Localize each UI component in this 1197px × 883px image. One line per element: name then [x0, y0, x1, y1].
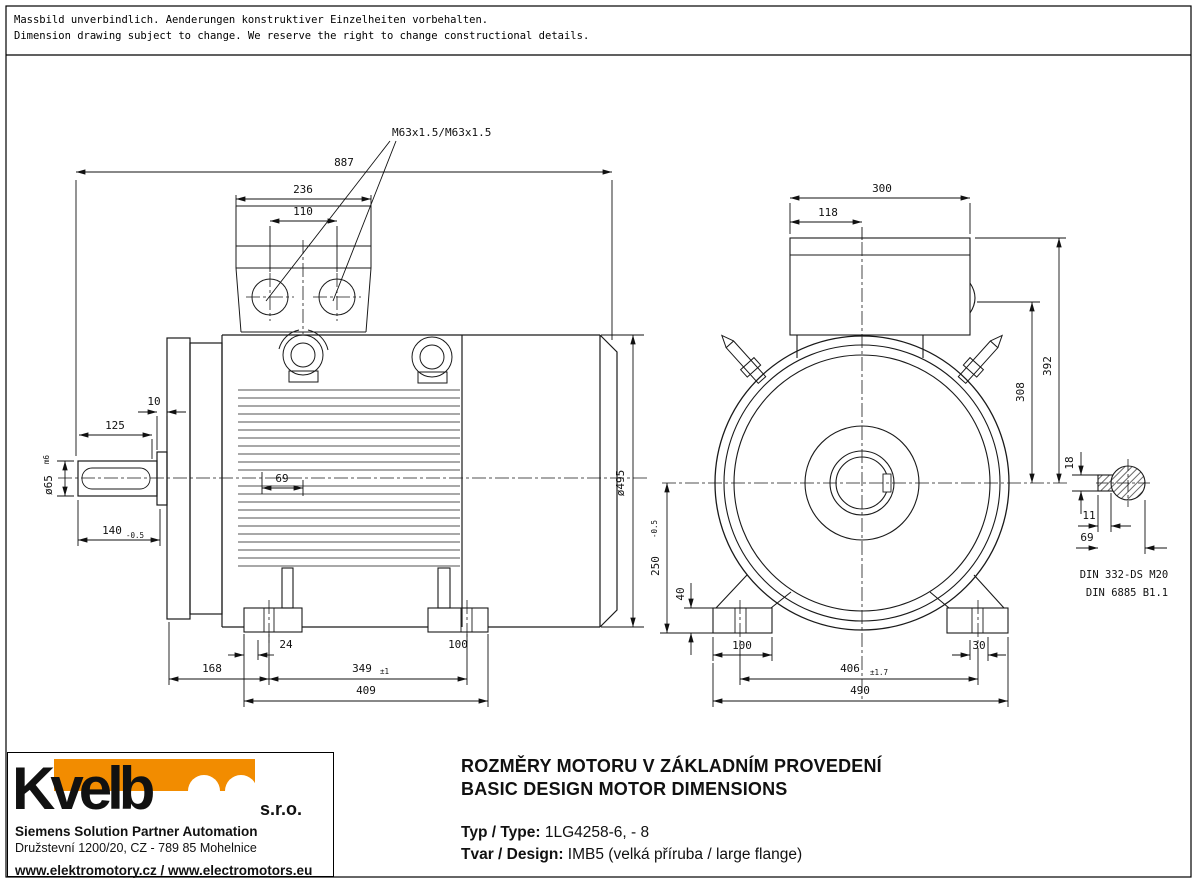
- logo-partner-line: Siemens Solution Partner Automation: [15, 824, 333, 840]
- motor-type-row: Typ / Type: 1LG4258-6, - 8: [461, 822, 882, 844]
- dim-shaft-height: 250: [649, 556, 662, 576]
- dim-shaft-length-tol: -0.5: [126, 531, 144, 540]
- shaft: [78, 461, 157, 496]
- dim-tbox-depth: 300: [872, 182, 892, 195]
- dim-gland-height: 308: [1014, 382, 1027, 402]
- din-center-bore-note: DIN 332-DS M20: [1080, 569, 1169, 581]
- feet-front: [713, 575, 1008, 633]
- logo-web-line: www.elektromotory.cz / www.electromotors…: [15, 863, 333, 879]
- logo-wordmark: Kvelb: [12, 755, 154, 819]
- side-view: [58, 206, 648, 644]
- front-view: [662, 238, 1068, 700]
- gland-boss: [970, 283, 975, 313]
- dim-foot-hole-span-front-tol: ±1.7: [870, 668, 888, 677]
- motor-design-row: Tvar / Design: IMB5 (velká příruba / lar…: [461, 844, 882, 866]
- dim-flange-to-foot-hole: 168: [202, 662, 222, 675]
- logo-arch: [225, 775, 257, 807]
- logo-block: Kvelb s.r.o. Siemens Solution Partner Au…: [7, 752, 334, 877]
- gland-thread-label: M63x1.5/M63x1.5: [392, 126, 491, 139]
- dim-foot-pad-width-front: 100: [732, 639, 752, 652]
- dim-foot-overall-side: 409: [356, 684, 376, 697]
- drawing-title-cs: ROZMĚRY MOTORU V ZÁKLADNÍM PROVEDENÍ: [461, 755, 882, 778]
- side-view-dimensions: [57, 141, 644, 707]
- dim-shaft-diameter-tol: m6: [42, 454, 51, 464]
- dim-foot-overall-front: 490: [850, 684, 870, 697]
- din-key-note: DIN 6885 B1.1: [1086, 587, 1168, 599]
- dim-foot-hole-span-front: 406: [840, 662, 860, 675]
- dim-shaft-diameter: ø65: [42, 475, 55, 495]
- dim-foot-pad-inner: 30: [972, 639, 985, 652]
- dim-foot-hole-span-side: 349: [352, 662, 372, 675]
- dim-tbox-offset: 118: [818, 206, 838, 219]
- dim-shaft-length: 140: [102, 524, 122, 537]
- kvelb-logo: Kvelb s.r.o.: [8, 753, 333, 819]
- dim-tbox-top-height: 392: [1041, 356, 1054, 376]
- drawing-page: Massbild unverbindlich. Aenderungen kons…: [0, 0, 1197, 883]
- centerlines-side: [58, 240, 648, 644]
- motor-type-value: 1LG4258-6, - 8: [541, 824, 650, 841]
- dim-fin-start-offset: 69: [275, 472, 288, 485]
- dim-foot-hole-span-side-tol: ±1: [380, 667, 389, 676]
- lifting-eye-right-icon: [955, 329, 1009, 386]
- flange: [157, 338, 222, 619]
- motor-type-label: Typ / Type:: [461, 824, 541, 841]
- front-view-dimensions: [660, 198, 1066, 707]
- lifting-eye-left-icon: [715, 329, 769, 386]
- drawing-title-en: BASIC DESIGN MOTOR DIMENSIONS: [461, 778, 882, 801]
- logo-address-line: Družstevní 1200/20, CZ - 789 85 Mohelnic…: [15, 840, 333, 856]
- dim-foot-pad-offset: 24: [279, 638, 293, 651]
- dim-key-section-height: 18: [1063, 456, 1076, 469]
- dim-key-length: 69: [1080, 531, 1093, 544]
- terminal-box-front: [790, 238, 975, 358]
- dim-hub-protrusion: 10: [147, 395, 160, 408]
- dim-overall-length: 887: [334, 156, 354, 169]
- dim-gland-spacing: 110: [293, 205, 313, 218]
- logo-suffix: s.r.o.: [260, 799, 302, 819]
- feet-side: [244, 568, 488, 632]
- dim-key-width: 11: [1082, 509, 1095, 522]
- side-view-dim-labels: 887 236 110 M63x1.5/M63x1.5 10 125 ø65 m…: [42, 126, 627, 697]
- motor-design-label: Tvar / Design:: [461, 846, 564, 863]
- dimension-drawing: 887 236 110 M63x1.5/M63x1.5 10 125 ø65 m…: [0, 0, 1197, 883]
- lifting-eye-icon: [279, 330, 452, 383]
- shaft-key-detail: [1096, 459, 1152, 507]
- terminal-box-top: [236, 206, 371, 332]
- dim-shaft-usable-length: 125: [105, 419, 125, 432]
- dim-shaft-height-tol: -0.5: [650, 520, 659, 538]
- page-border: [6, 6, 1191, 877]
- centerlines-front: [662, 242, 1068, 700]
- dim-tbox-top-width: 236: [293, 183, 313, 196]
- title-block: ROZMĚRY MOTORU V ZÁKLADNÍM PROVEDENÍ BAS…: [461, 755, 882, 866]
- dim-foot-pad-width-side: 100: [448, 638, 468, 651]
- logo-arch: [188, 775, 220, 807]
- dim-foot-pad-height: 40: [674, 587, 687, 600]
- dim-frame-diameter: ø495: [614, 470, 627, 497]
- motor-design-value: IMB5 (velká příruba / large flange): [564, 846, 803, 863]
